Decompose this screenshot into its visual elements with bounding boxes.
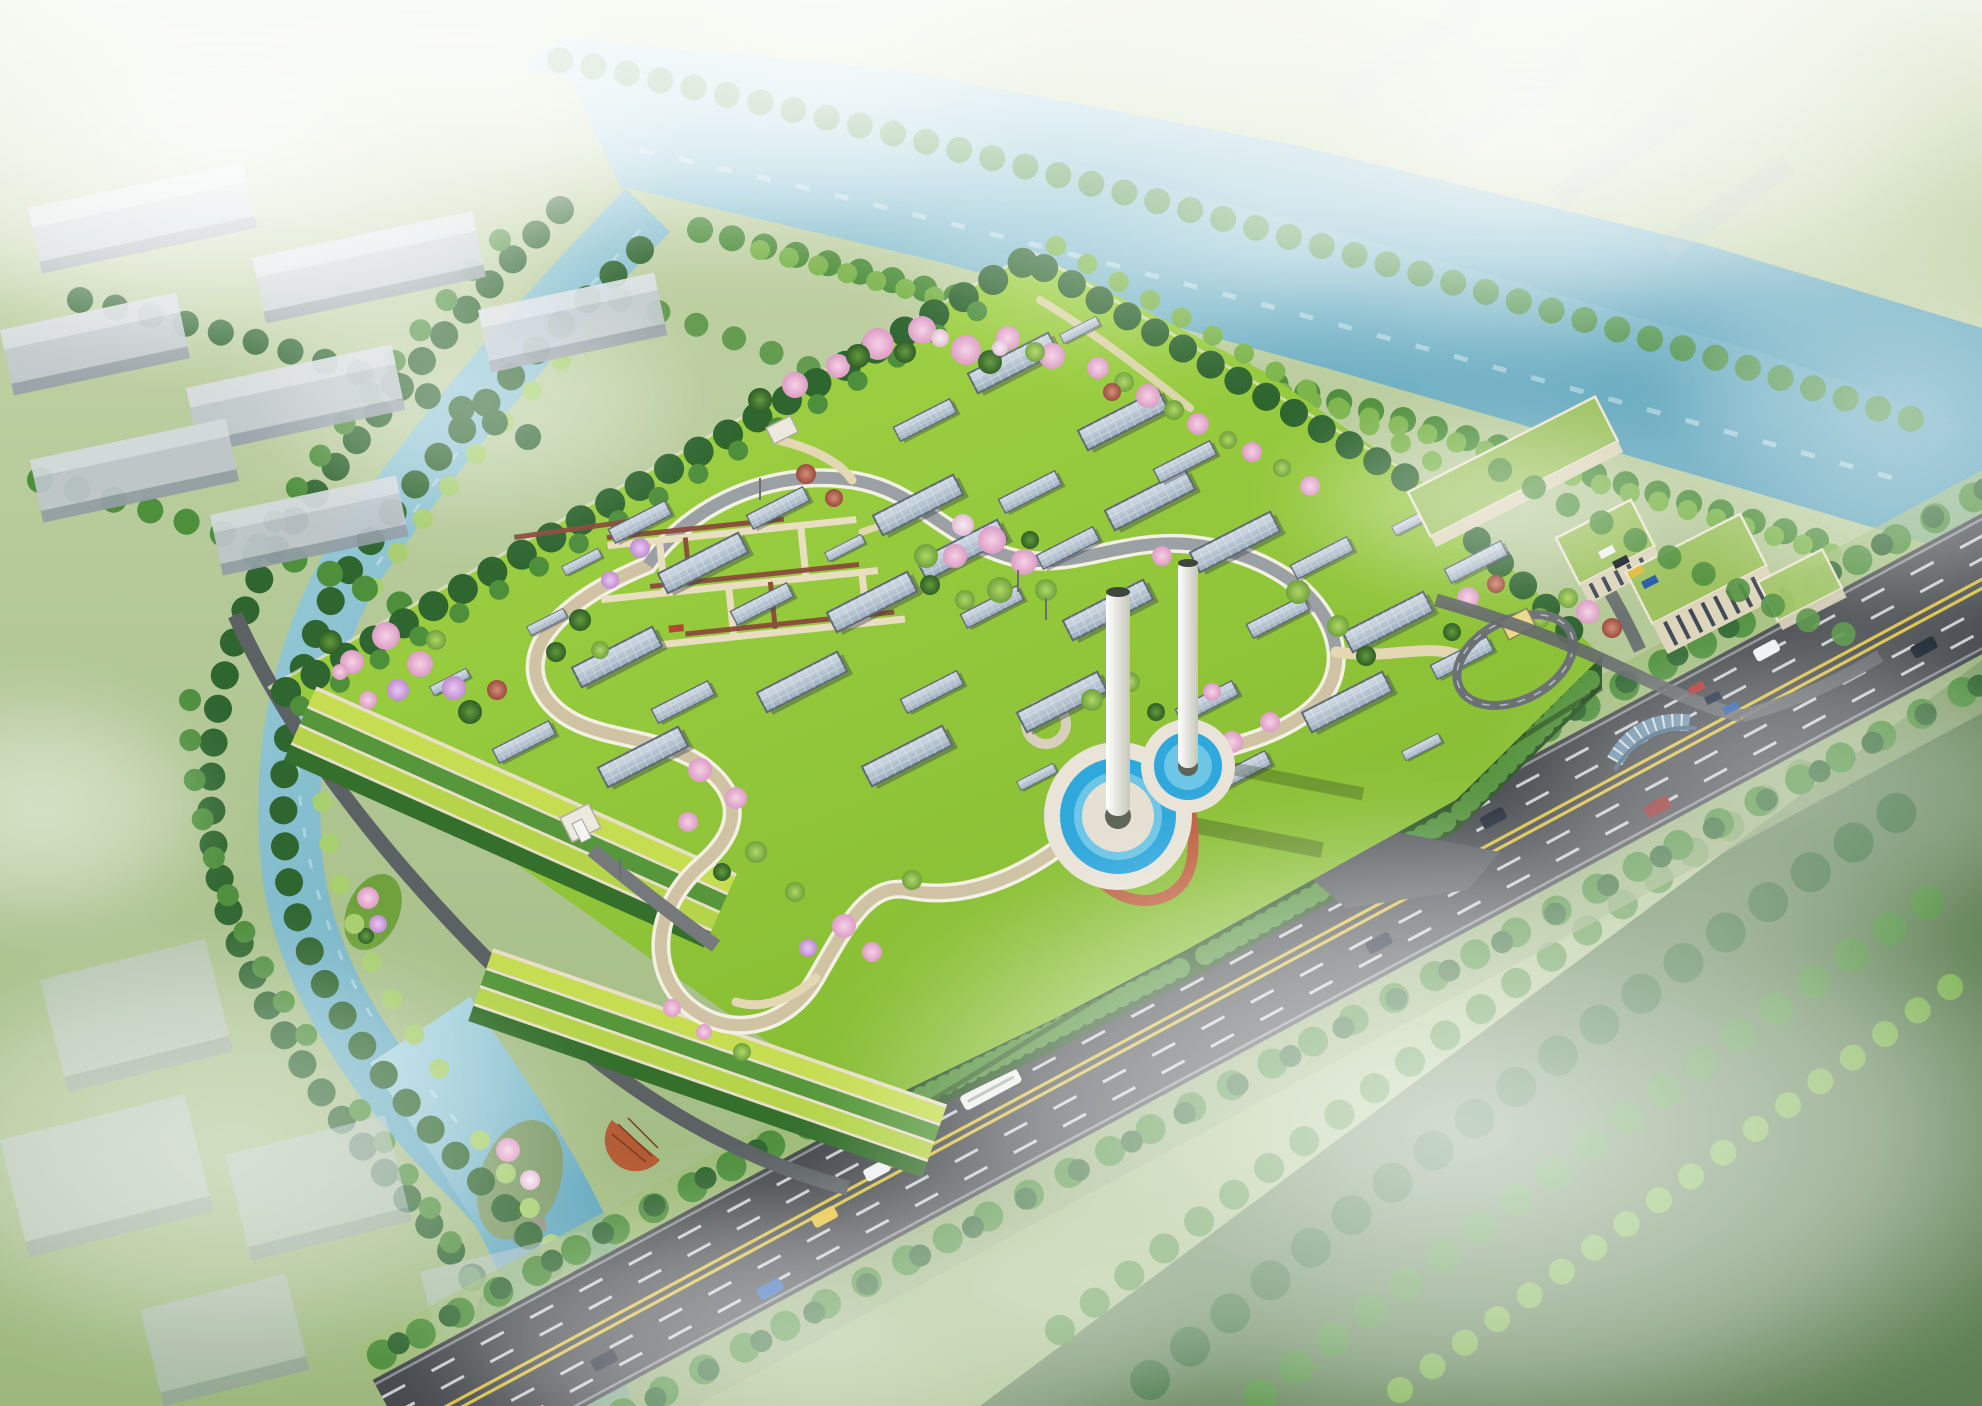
rendering-canvas: [0, 0, 1982, 1406]
vent-tower-b: [1178, 559, 1198, 768]
vent-tower-a: [1106, 587, 1130, 816]
atmospheric-veil: [0, 0, 1982, 300]
